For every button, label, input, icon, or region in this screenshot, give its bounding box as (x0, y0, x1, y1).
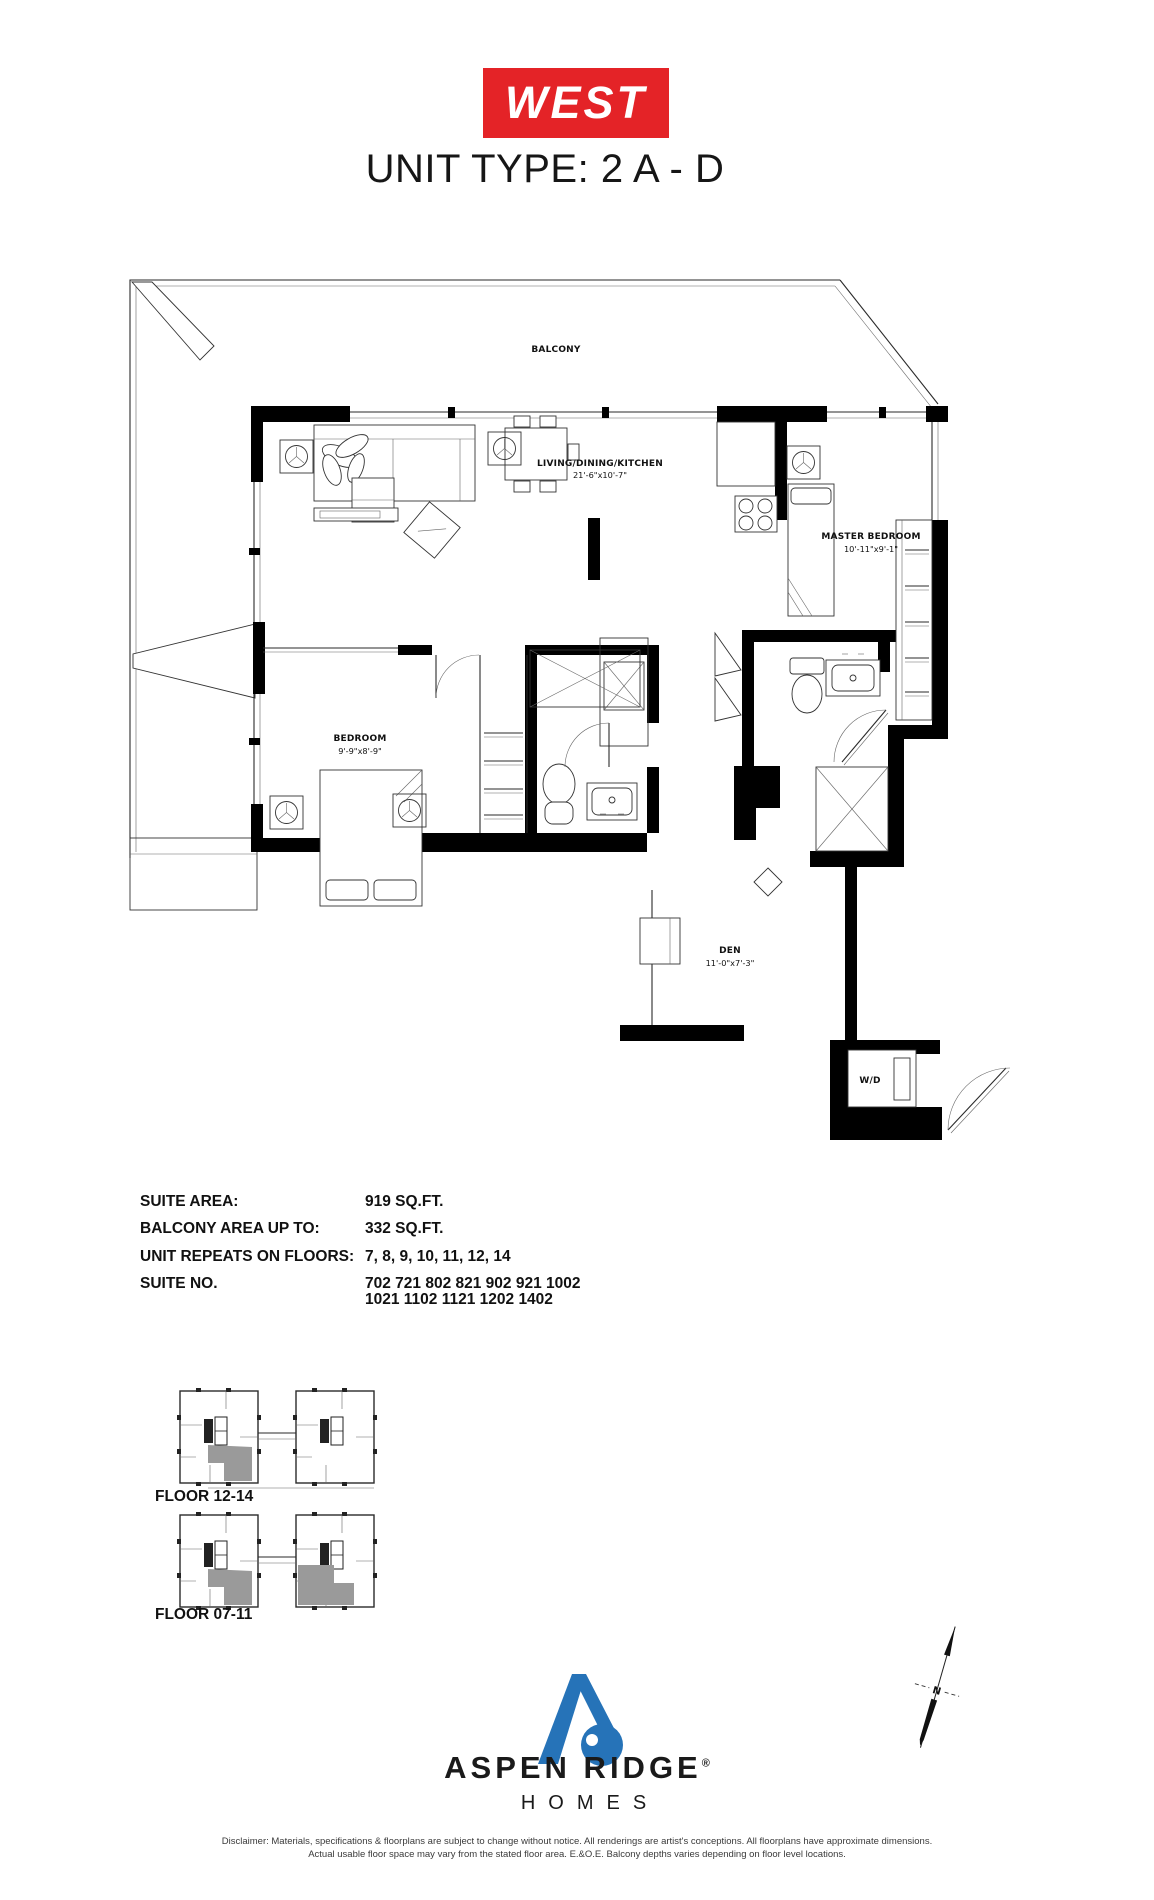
bath-toilet (543, 764, 575, 824)
keyplan-label-floor-12-14: FLOOR 12-14 (155, 1488, 253, 1506)
label-bedroom: BEDROOM (333, 734, 386, 744)
dims-living: 21'-6"x10'-7" (573, 470, 627, 480)
suite-no-line1: 702 721 802 821 902 921 1002 (365, 1276, 760, 1292)
bifold-doors (715, 633, 741, 721)
balcony-area-label: BALCONY AREA UP TO: (140, 1221, 365, 1237)
brand-badge-label: WEST (505, 77, 647, 129)
console-table (314, 508, 398, 521)
kitchen-sink (604, 662, 644, 710)
dining-table (505, 416, 579, 492)
ensuite-sink (826, 654, 880, 696)
disclaimer-line-1: Disclaimer: Materials, specifications & … (127, 1836, 1027, 1849)
registered-mark: ® (702, 1758, 710, 1770)
balcony-area-value: 332 SQ.FT. (365, 1221, 760, 1237)
page-title: UNIT TYPE: 2 A - D (0, 147, 1090, 192)
spec-row-balcony-area: BALCONY AREA UP TO: 332 SQ.FT. (140, 1221, 760, 1237)
north-compass: N (872, 1610, 1002, 1760)
keyplan-floor-12-14 (177, 1388, 377, 1488)
floor-plan: BALCONY LIVING/DINING/KITCHEN 21'-6"x10'… (100, 218, 1020, 1148)
brand-badge-west: WEST (483, 68, 669, 138)
ensuite-door (834, 710, 888, 765)
spec-row-suite-no: SUITE NO. 702 721 802 821 902 921 1002 1… (140, 1276, 760, 1309)
entry-door (948, 1068, 1010, 1133)
master-wardrobe (896, 520, 932, 720)
linen-closet (816, 767, 888, 851)
floors-label: UNIT REPEATS ON FLOORS: (140, 1249, 365, 1265)
suite-no-value: 702 721 802 821 902 921 1002 1021 1102 1… (365, 1276, 760, 1309)
keyplan-label-floor-07-11: FLOOR 07-11 (155, 1606, 252, 1624)
dims-bedroom: 9'-9"x8'-9" (338, 746, 382, 756)
floors-value: 7, 8, 9, 10, 11, 12, 14 (365, 1249, 760, 1265)
stove (735, 496, 777, 532)
washer-dryer (848, 1050, 916, 1107)
keyplan-floor-07-11 (177, 1512, 377, 1610)
spec-row-suite-area: SUITE AREA: 919 SQ.FT. (140, 1194, 760, 1210)
disclaimer-line-2: Actual usable floor space may vary from … (127, 1849, 1027, 1862)
armchair (404, 502, 460, 558)
label-den: DEN (719, 946, 741, 956)
bath-sink (587, 783, 637, 820)
label-master: MASTER BEDROOM (821, 532, 920, 542)
label-wd: W/D (859, 1076, 880, 1086)
spec-row-floors: UNIT REPEATS ON FLOORS: 7, 8, 9, 10, 11,… (140, 1249, 760, 1265)
hall-closet (480, 655, 527, 833)
bath-door (565, 723, 609, 767)
aspen-ridge-wordmark: ASPEN RIDGE® (0, 1750, 1154, 1786)
bedroom-door (436, 655, 479, 698)
bedroom-bed (320, 770, 422, 906)
dims-den: 11'-0"x7'-3" (706, 958, 755, 968)
brand-name: ASPEN RIDGE (444, 1750, 702, 1785)
aspen-ridge-homes-label: HOMES (13, 1792, 1154, 1815)
dims-master: 10'-11"x9'-1" (844, 544, 898, 554)
disclaimer: Disclaimer: Materials, specifications & … (127, 1836, 1027, 1862)
den-desk (640, 918, 680, 964)
suite-area-label: SUITE AREA: (140, 1194, 365, 1210)
label-living: LIVING/DINING/KITCHEN (537, 459, 663, 469)
master-bed (788, 484, 834, 616)
suite-area-value: 919 SQ.FT. (365, 1194, 760, 1210)
suite-specs: SUITE AREA: 919 SQ.FT. BALCONY AREA UP T… (140, 1194, 760, 1319)
ensuite-toilet (790, 658, 824, 713)
suite-no-label: SUITE NO. (140, 1276, 365, 1309)
compass-north-label: N (931, 1685, 942, 1698)
hall-diamond (754, 868, 782, 896)
label-balcony: BALCONY (531, 345, 581, 355)
suite-no-line2: 1021 1102 1121 1202 1402 (365, 1292, 760, 1308)
